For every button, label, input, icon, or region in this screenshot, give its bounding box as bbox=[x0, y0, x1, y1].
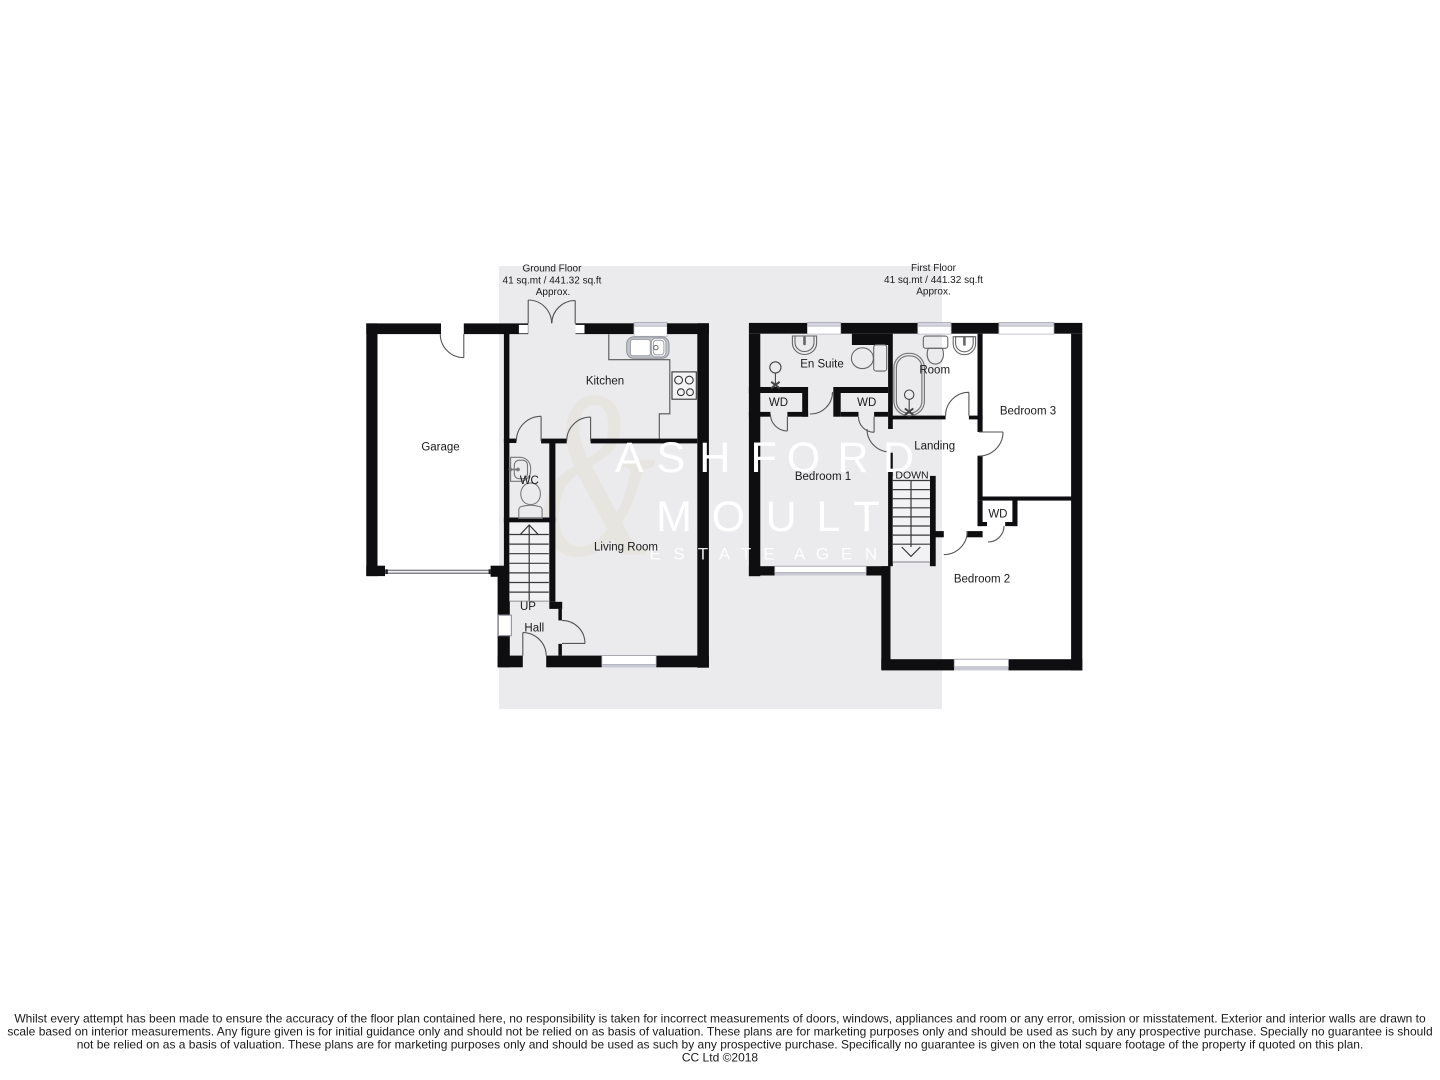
svg-text:41 sq.mt / 441.32 sq.ft: 41 sq.mt / 441.32 sq.ft bbox=[503, 276, 602, 287]
svg-text:En Suite: En Suite bbox=[800, 359, 843, 371]
svg-text:First Floor: First Floor bbox=[911, 263, 957, 274]
svg-text:Hall: Hall bbox=[524, 623, 544, 635]
svg-text:Room: Room bbox=[919, 365, 950, 377]
svg-text:T: T bbox=[698, 545, 708, 564]
svg-text:U: U bbox=[766, 493, 797, 541]
svg-text:A: A bbox=[719, 545, 731, 564]
svg-text:T: T bbox=[853, 493, 879, 541]
svg-text:UP: UP bbox=[520, 601, 536, 613]
svg-text:A: A bbox=[615, 434, 644, 482]
svg-text:F: F bbox=[750, 434, 776, 482]
svg-text:H: H bbox=[699, 434, 730, 482]
svg-text:WD: WD bbox=[988, 509, 1007, 521]
svg-text:CC Ltd ©2018: CC Ltd ©2018 bbox=[682, 1051, 759, 1065]
svg-text:Bedroom 3: Bedroom 3 bbox=[1000, 406, 1056, 418]
svg-text:Landing: Landing bbox=[914, 441, 955, 453]
svg-text:Whilst every attempt has been: Whilst every attempt has been made to en… bbox=[14, 1012, 1426, 1026]
svg-text:L: L bbox=[816, 493, 840, 541]
svg-text:Ground Floor: Ground Floor bbox=[523, 264, 583, 275]
svg-text:O: O bbox=[712, 493, 745, 541]
svg-text:Kitchen: Kitchen bbox=[586, 376, 624, 388]
svg-text:E: E bbox=[841, 545, 852, 564]
svg-text:T: T bbox=[741, 545, 751, 564]
svg-text:41 sq.mt / 441.32 sq.ft: 41 sq.mt / 441.32 sq.ft bbox=[884, 275, 983, 286]
svg-text:Living Room: Living Room bbox=[594, 542, 658, 554]
svg-text:Garage: Garage bbox=[421, 442, 459, 454]
svg-text:S: S bbox=[657, 434, 686, 482]
svg-text:A: A bbox=[794, 545, 806, 564]
svg-text:E: E bbox=[763, 545, 774, 564]
svg-text:G: G bbox=[816, 545, 829, 564]
svg-text:DOWN: DOWN bbox=[895, 470, 928, 482]
svg-text:not be relied on as a basis of: not be relied on as a basis of valuation… bbox=[77, 1038, 1364, 1052]
svg-text:M: M bbox=[656, 493, 692, 541]
svg-text:Bedroom 1: Bedroom 1 bbox=[795, 471, 851, 483]
svg-text:WD: WD bbox=[857, 397, 876, 409]
svg-text:Approx.: Approx. bbox=[536, 287, 570, 298]
svg-text:S: S bbox=[673, 545, 684, 564]
svg-text:WD: WD bbox=[769, 397, 788, 409]
svg-text:Bedroom 2: Bedroom 2 bbox=[954, 574, 1010, 586]
svg-text:N: N bbox=[865, 545, 877, 564]
svg-text:WC: WC bbox=[520, 475, 539, 487]
svg-text:Approx.: Approx. bbox=[916, 287, 950, 298]
svg-text:scale based on interior measur: scale based on interior measurements. An… bbox=[7, 1025, 1432, 1039]
